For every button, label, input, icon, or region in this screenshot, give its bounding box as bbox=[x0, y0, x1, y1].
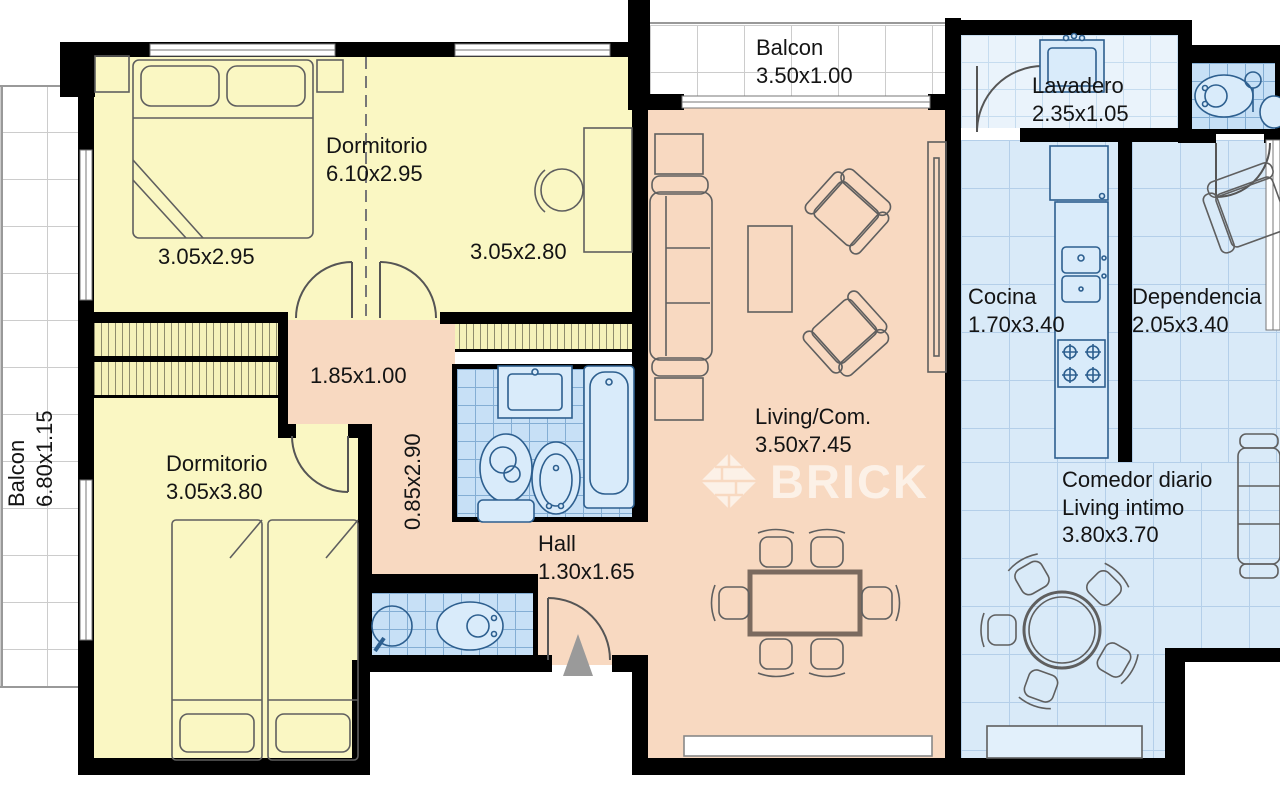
label-laundry: Lavadero 2.35x1.05 bbox=[1032, 72, 1129, 127]
label-bedroom-main: Dormitorio 6.10x2.95 bbox=[326, 132, 427, 187]
label-corridor-horizontal: 1.85x1.00 bbox=[310, 362, 407, 390]
room-toilette bbox=[366, 588, 538, 668]
floor-plan: BRICK bbox=[0, 0, 1280, 800]
label-kitchen: Cocina 1.70x3.40 bbox=[968, 283, 1065, 338]
label-bedroom-main-sub-right: 3.05x2.80 bbox=[470, 238, 567, 266]
brand-watermark: BRICK bbox=[698, 450, 929, 512]
room-bathroom-main bbox=[452, 364, 638, 522]
label-balcony-top: Balcon 3.50x1.00 bbox=[756, 34, 853, 89]
label-hall: Hall 1.30x1.65 bbox=[538, 530, 635, 585]
closet-right bbox=[452, 318, 638, 352]
room-bedroom-main bbox=[94, 57, 632, 320]
closet-left-bottom bbox=[94, 359, 284, 398]
closet-left-top bbox=[94, 320, 284, 359]
room-bathroom-service bbox=[1186, 58, 1280, 134]
brand-watermark-text: BRICK bbox=[770, 454, 929, 509]
label-comedor: Comedor diario Living intimo 3.80x3.70 bbox=[1062, 466, 1212, 549]
label-corridor-vertical: 0.85x2.90 bbox=[399, 410, 427, 530]
label-balcony-left: Balcon 6.80x1.15 bbox=[3, 347, 57, 507]
notch-outside bbox=[1185, 662, 1280, 800]
label-dependencia: Dependencia 2.05x3.40 bbox=[1132, 283, 1262, 338]
label-bedroom-main-sub-left: 3.05x2.95 bbox=[158, 243, 255, 271]
label-bedroom-second: Dormitorio 3.05x3.80 bbox=[166, 450, 267, 505]
brick-logo-icon bbox=[698, 450, 760, 512]
label-living: Living/Com. 3.50x7.45 bbox=[755, 403, 871, 458]
